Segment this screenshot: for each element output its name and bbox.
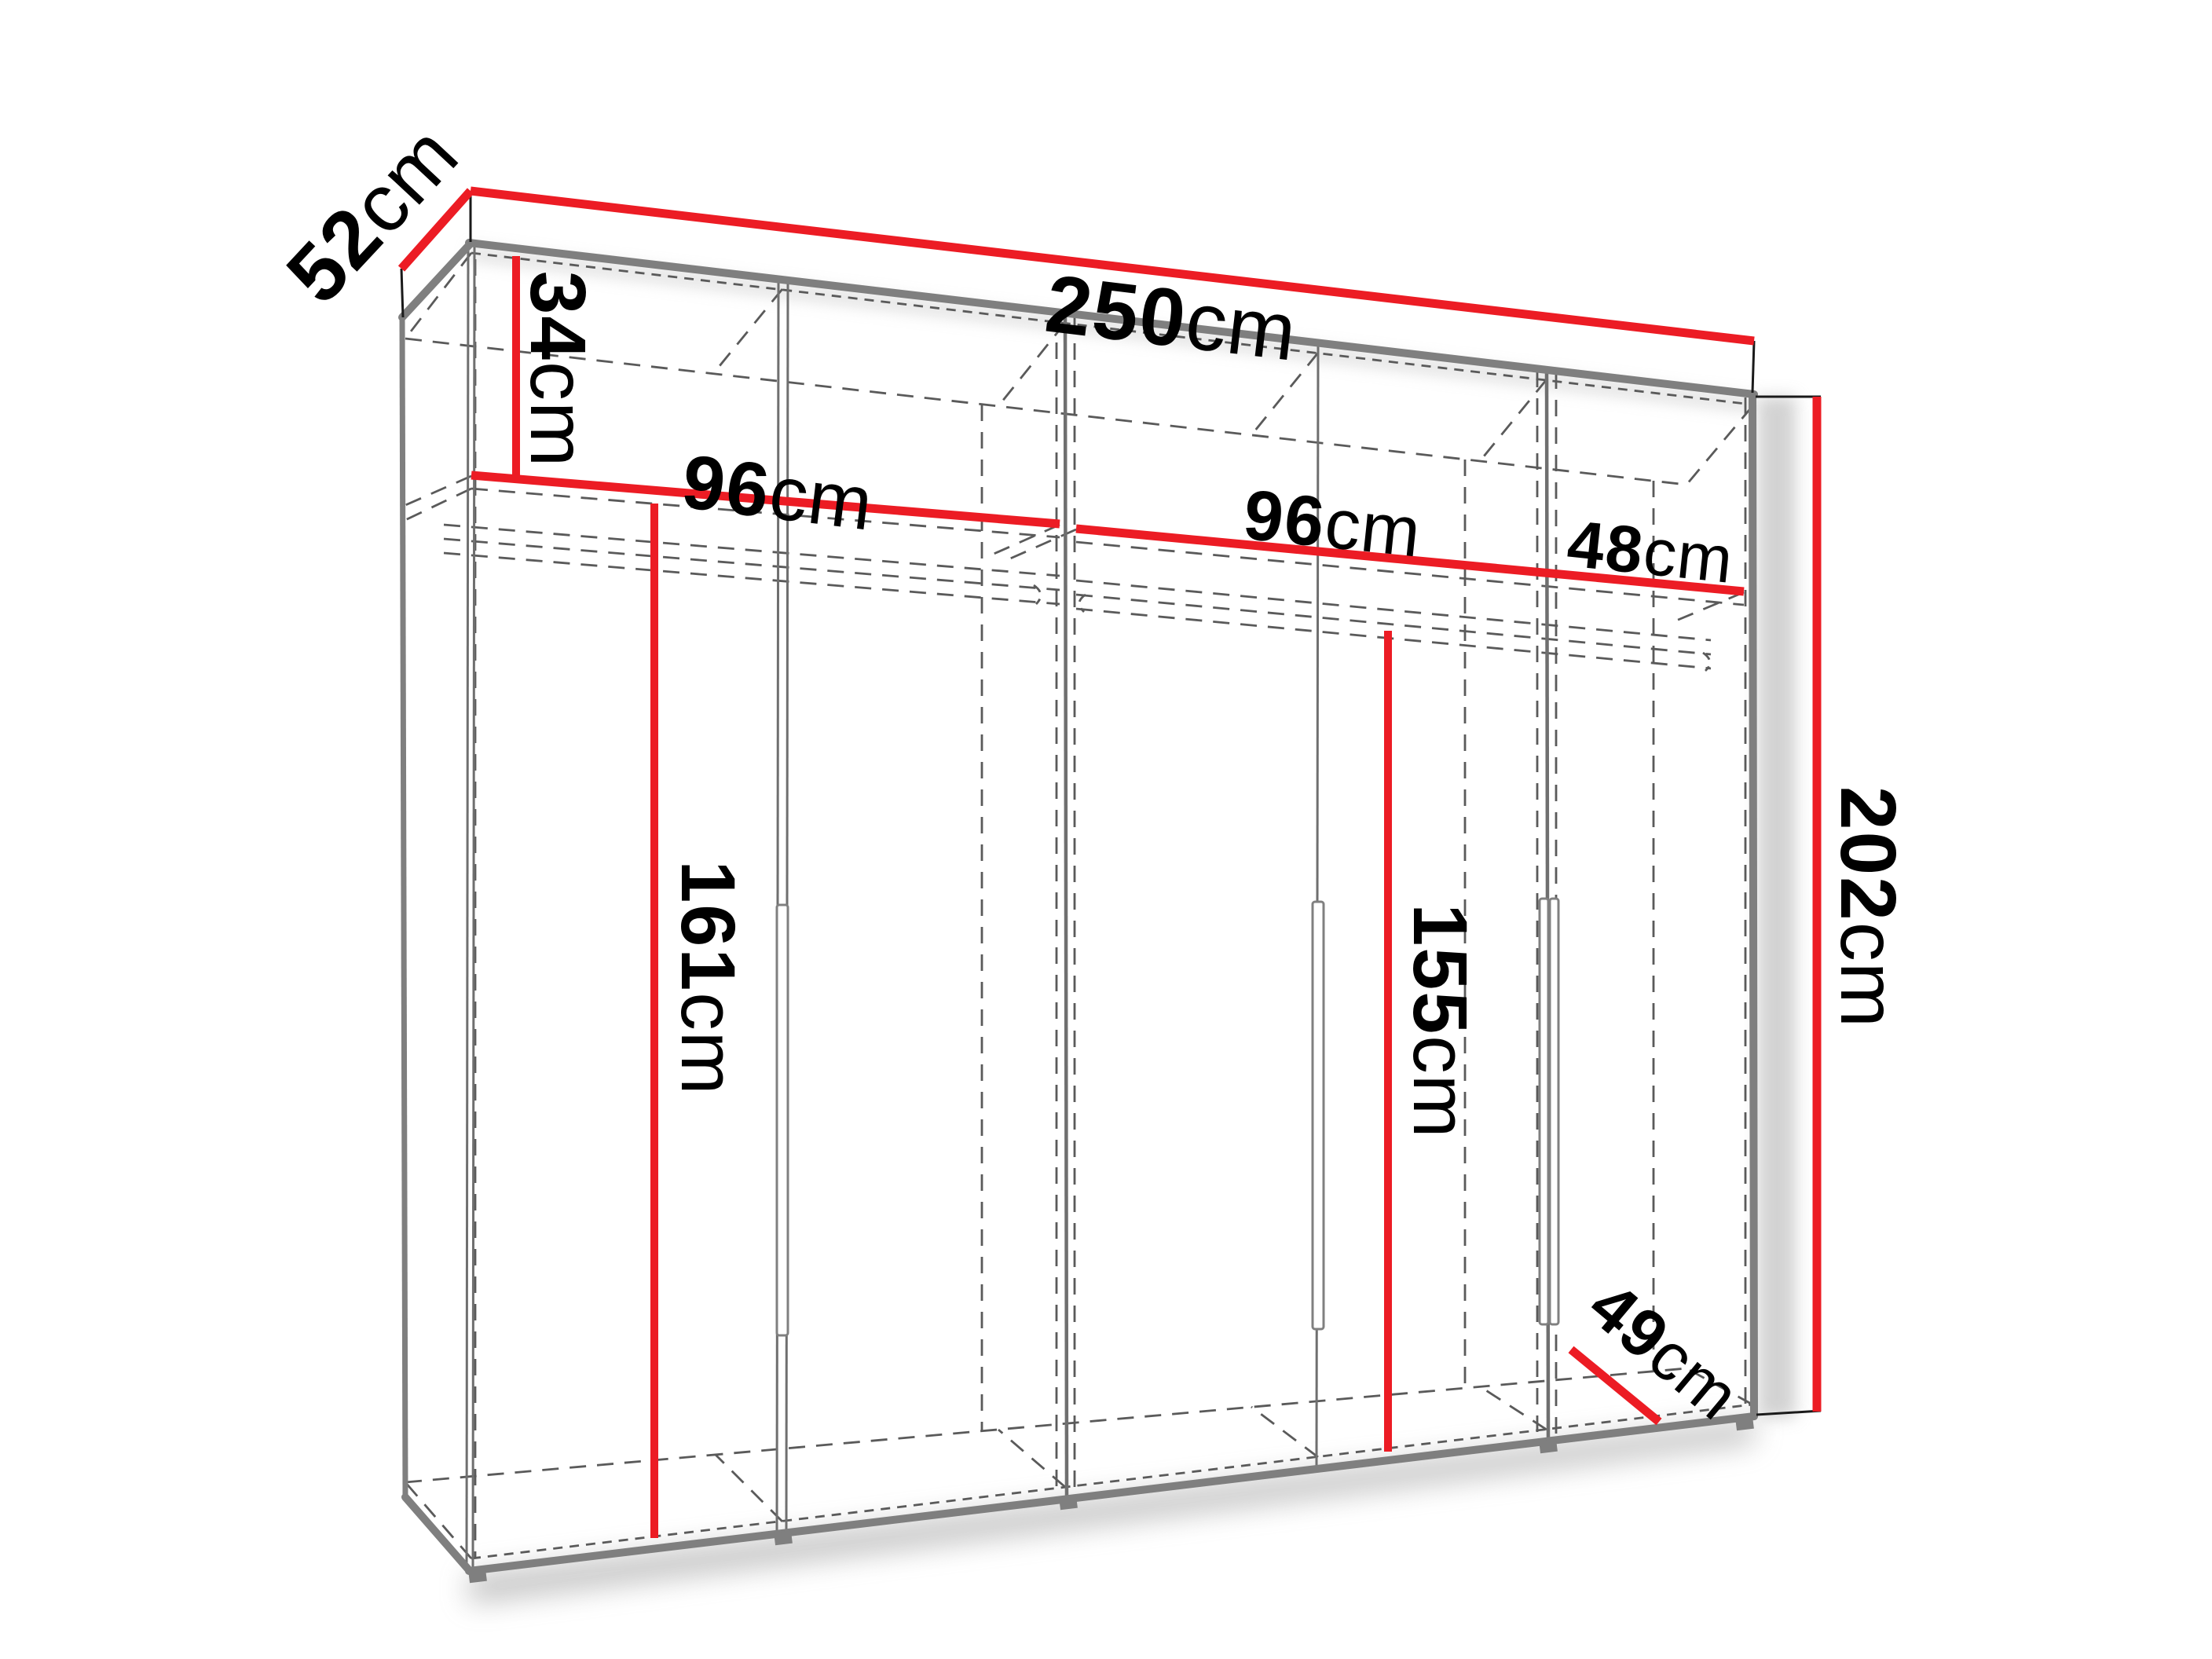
dashed-depth-top-996 (716, 289, 782, 371)
dashed-rod2-line3 (1076, 609, 1711, 668)
dashed-floor-front (471, 1404, 1752, 1558)
dashed-rod2-line1 (1076, 580, 1711, 640)
bottom-front-edge (469, 1416, 1754, 1571)
door-handle-4 (1550, 899, 1558, 1324)
dashed-shelf-depth-left2 (405, 489, 471, 520)
foot-4 (1539, 1439, 1558, 1454)
tick-top-right (1752, 341, 1754, 393)
right-side-shadow (1758, 397, 1796, 1418)
door-handle-3 (1540, 899, 1548, 1324)
dashed-rod1-line1 (444, 525, 1060, 576)
dashed-depth-top-1969 (1480, 379, 1547, 461)
left-front-edge-inner-line (467, 244, 468, 1571)
dashed-depth-bottom-1678 (1251, 1407, 1318, 1457)
label-section1-96: 96cm (678, 438, 878, 547)
diagram-canvas: 52cm 250cm 34cm 96cm 96cm 48cm 202cm 161… (0, 0, 2212, 1659)
dashed-depth-bottom-left (405, 1482, 471, 1558)
foot-5 (1735, 1416, 1754, 1431)
wardrobe-dimension-diagram: 52cm 250cm 34cm 96cm 96cm 48cm 202cm 161… (0, 0, 2212, 1659)
tick-depth-end (401, 269, 403, 317)
right-front-edge (1752, 394, 1754, 1416)
dashed-shelf-depth-left1 (404, 476, 471, 506)
label-interior-161: 161cm (665, 860, 751, 1095)
label-width-250: 250cm (1041, 258, 1302, 379)
label-section2-96: 96cm (1240, 476, 1424, 573)
foot-2 (774, 1531, 793, 1546)
door-handle-2 (1313, 902, 1324, 1329)
partition-1-line (1065, 313, 1067, 1498)
dashed-shelf-depth-right (1676, 592, 1744, 621)
label-interior-155: 155cm (1397, 903, 1483, 1138)
dashed-depth-top-left (405, 253, 471, 339)
dimension-labels: 52cm 250cm 34cm 96cm 96cm 48cm 202cm 161… (269, 108, 1912, 1434)
door-handle-1 (777, 905, 788, 1335)
label-section3-48: 48cm (1564, 506, 1737, 597)
dashed-rod1-line2 (444, 539, 1060, 590)
label-top-34: 34cm (514, 271, 602, 468)
dashed-depth-bottom-1356 (998, 1430, 1065, 1487)
label-height-202: 202cm (1824, 786, 1912, 1028)
dashed-depth-bottom-996 (716, 1455, 782, 1522)
dashed-rod2-endcap-right (1703, 653, 1710, 671)
bottom-left-side-edge (405, 1497, 470, 1571)
dashed-rod1-line3 (444, 553, 1060, 604)
label-bottom-49: 49cm (1575, 1267, 1753, 1434)
dashed-shelf-depth-mid1 (992, 525, 1060, 555)
floor-shadow (469, 1420, 1754, 1602)
dashed-rod2-line2 (1076, 595, 1711, 654)
dashed-depth-top-right (1686, 406, 1752, 485)
foot-3 (1059, 1496, 1078, 1511)
back-left-edge (402, 317, 405, 1497)
wardrobe-structure (402, 243, 1754, 1583)
foot-1 (468, 1569, 487, 1584)
left-front-edge-outer-line (473, 245, 474, 1569)
